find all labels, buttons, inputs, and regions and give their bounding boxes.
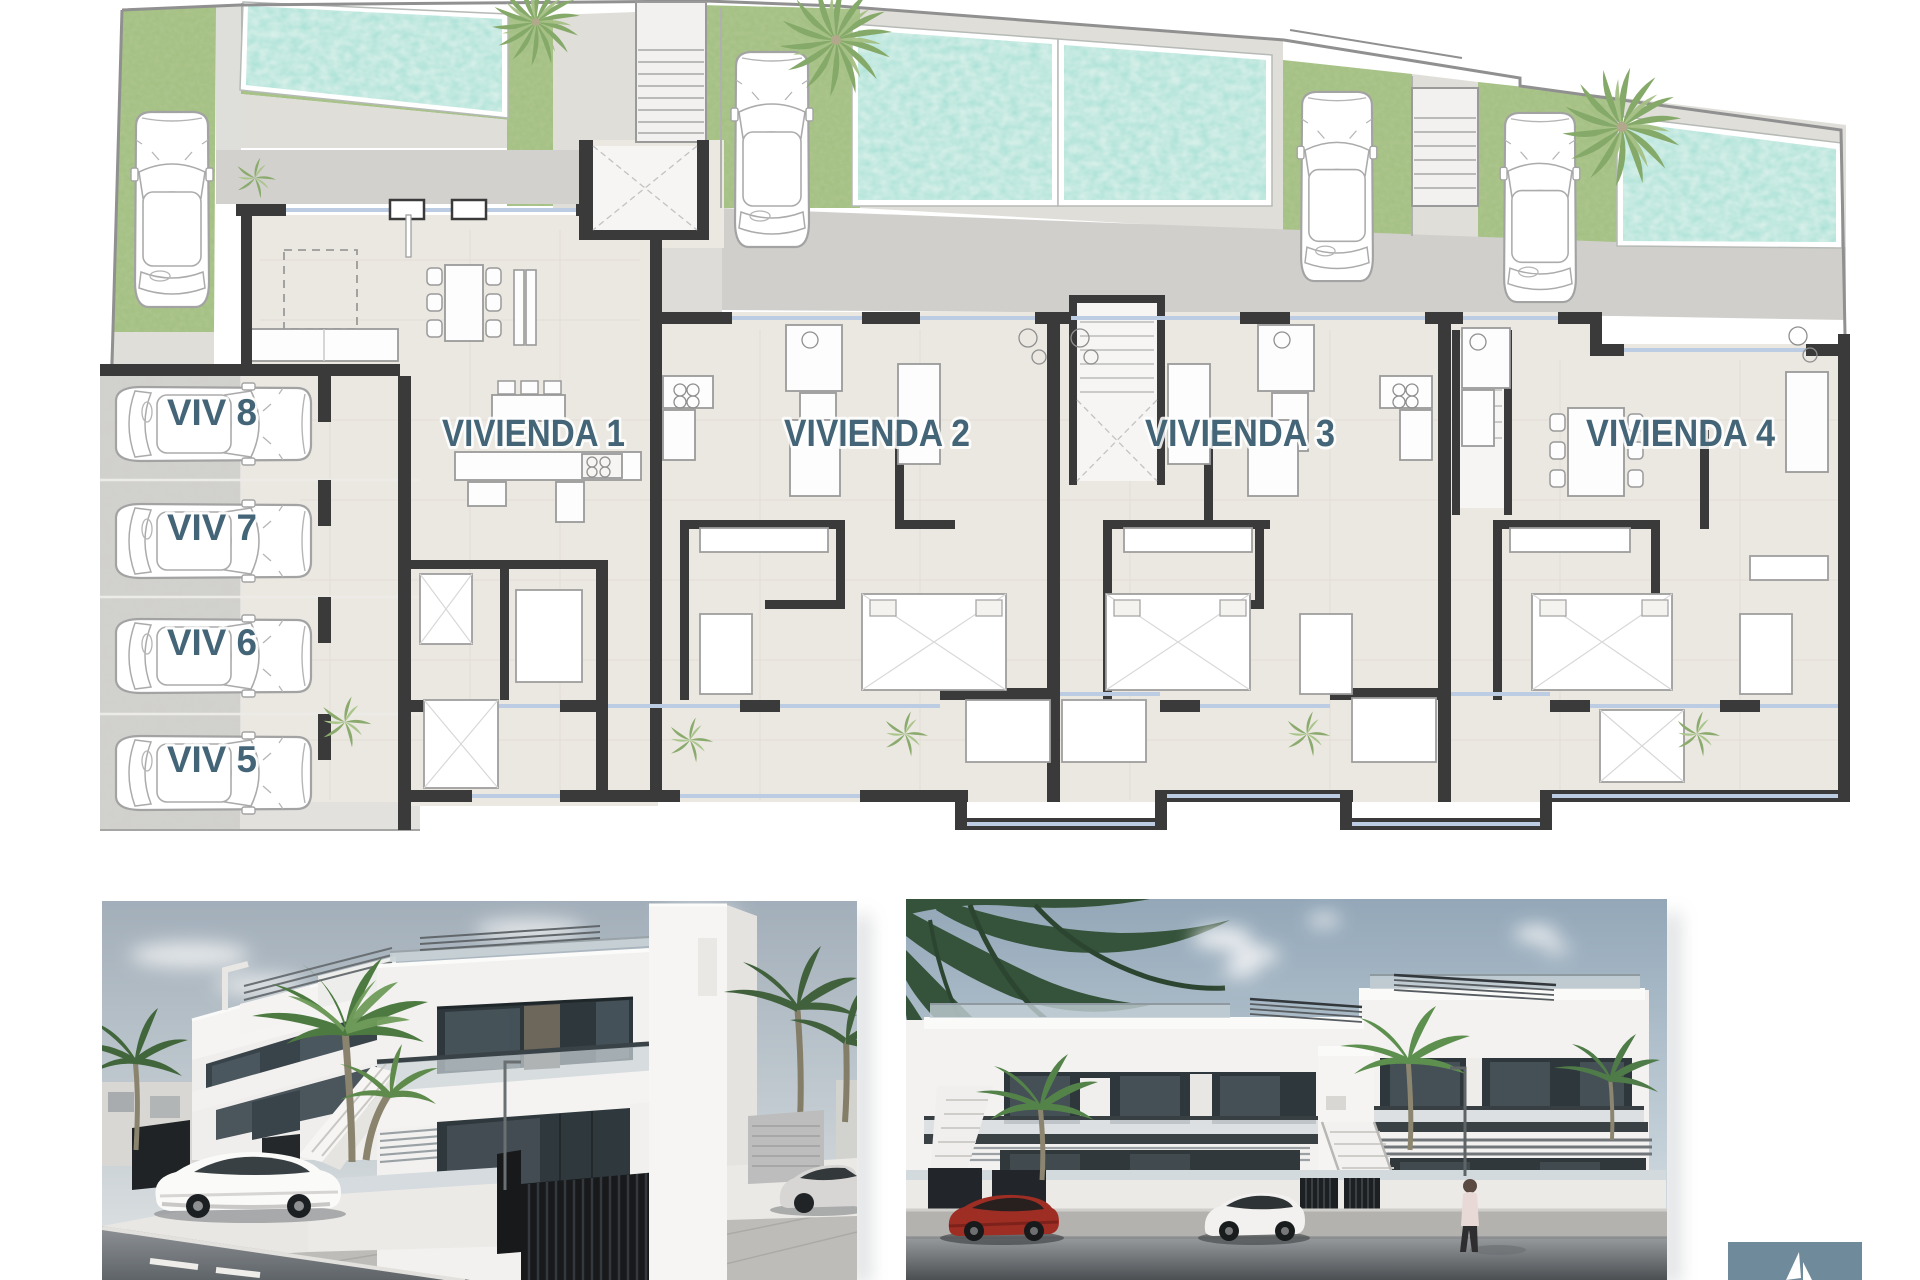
- svg-text:VIVIENDA 4: VIVIENDA 4: [1586, 413, 1775, 455]
- svg-text:VIVIENDA 1: VIVIENDA 1: [442, 413, 625, 455]
- svg-text:VIV 5: VIV 5: [167, 739, 257, 780]
- svg-text:VIV 8: VIV 8: [167, 392, 257, 433]
- svg-text:VIV 6: VIV 6: [167, 622, 257, 663]
- svg-text:VIVIENDA 3: VIVIENDA 3: [1145, 413, 1335, 455]
- svg-text:VIVIENDA 2: VIVIENDA 2: [784, 413, 970, 455]
- svg-text:VIV 7: VIV 7: [167, 507, 257, 548]
